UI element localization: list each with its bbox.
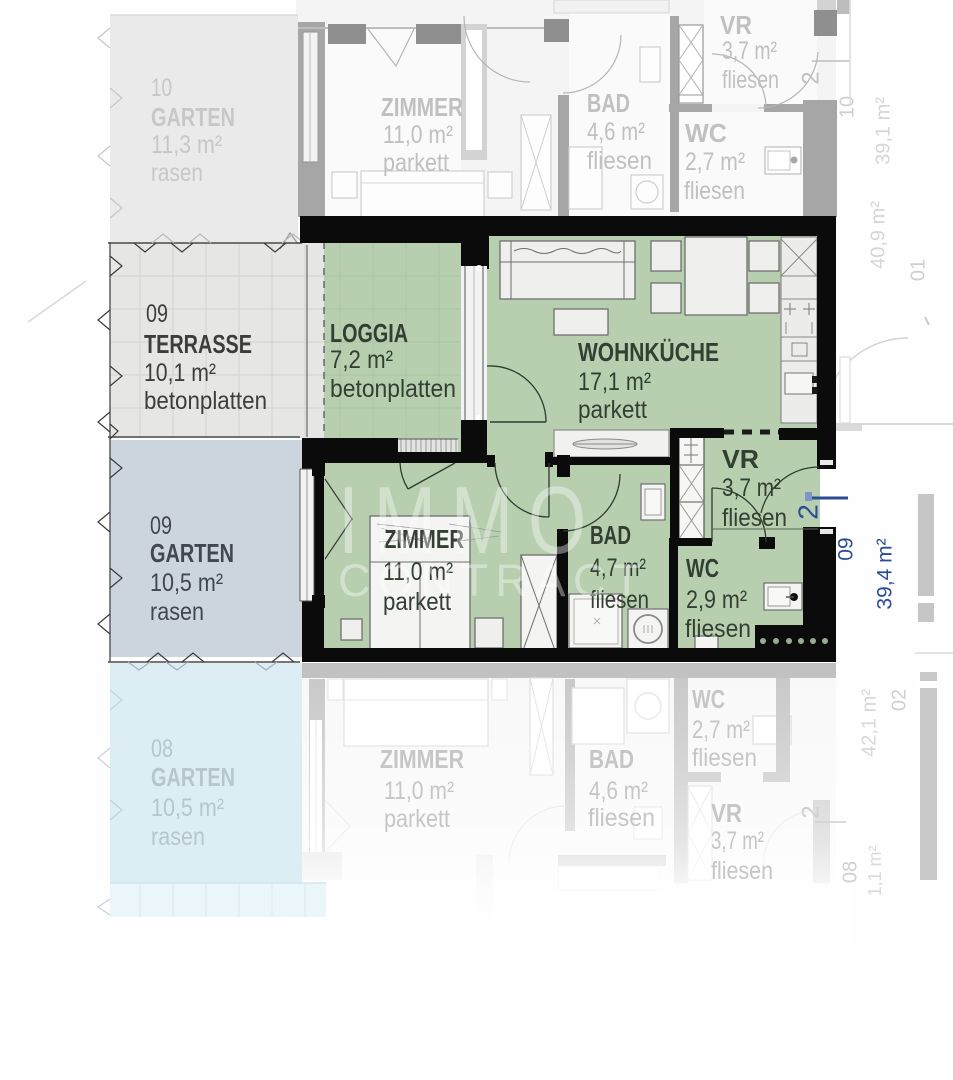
svg-text:LOGGIA: LOGGIA	[330, 318, 408, 348]
svg-text:ZIMMER: ZIMMER	[380, 744, 464, 774]
svg-text:parkett: parkett	[383, 149, 449, 177]
svg-text:rasen: rasen	[150, 598, 204, 626]
svg-text:02: 02	[888, 689, 910, 711]
svg-text:39,1 m²: 39,1 m²	[872, 97, 894, 165]
svg-text:09: 09	[835, 537, 858, 560]
svg-text:09: 09	[150, 512, 172, 540]
svg-text:2: 2	[797, 71, 824, 84]
svg-text:BAD: BAD	[589, 744, 634, 774]
svg-text:ZIMMER: ZIMMER	[381, 92, 463, 122]
svg-text:40,9 m²: 40,9 m²	[867, 201, 889, 269]
svg-text:1,1 m²: 1,1 m²	[865, 845, 885, 896]
svg-text:parkett: parkett	[384, 805, 450, 833]
svg-text:VR: VR	[711, 798, 742, 828]
svg-text:09: 09	[146, 300, 168, 328]
svg-text:01: 01	[907, 259, 929, 281]
svg-text:parkett: parkett	[578, 396, 647, 424]
svg-text:CONTRACT: CONTRACT	[338, 555, 648, 606]
svg-text:rasen: rasen	[151, 823, 205, 851]
svg-text:WOHNKÜCHE: WOHNKÜCHE	[578, 337, 719, 367]
svg-text:GARTEN: GARTEN	[151, 762, 235, 792]
svg-text:fliesen: fliesen	[722, 66, 779, 94]
svg-text:fliesen: fliesen	[711, 857, 773, 885]
svg-text:2,7 m²: 2,7 m²	[692, 716, 750, 744]
svg-text:11,3 m²: 11,3 m²	[151, 131, 222, 159]
svg-text:betonplatten: betonplatten	[330, 375, 456, 403]
svg-text:3,7 m²: 3,7 m²	[722, 474, 781, 502]
svg-text:GARTEN: GARTEN	[151, 102, 235, 132]
svg-text:WC: WC	[692, 684, 725, 714]
svg-text:10,5 m²: 10,5 m²	[151, 794, 224, 822]
svg-text:17,1 m²: 17,1 m²	[578, 368, 651, 396]
svg-text:BAD: BAD	[587, 88, 630, 118]
svg-text:betonplatten: betonplatten	[144, 387, 267, 415]
svg-text:08: 08	[151, 735, 173, 763]
svg-text:fliesen: fliesen	[588, 804, 655, 832]
svg-text:08: 08	[839, 861, 861, 883]
svg-text:2: 2	[797, 805, 824, 818]
svg-text:10,5 m²: 10,5 m²	[150, 569, 223, 597]
svg-text:2,7 m²: 2,7 m²	[685, 148, 745, 176]
svg-text:39,4 m²: 39,4 m²	[874, 538, 897, 609]
svg-text:GARTEN: GARTEN	[150, 538, 234, 568]
svg-text:2: 2	[792, 504, 823, 520]
svg-text:fliesen: fliesen	[685, 615, 751, 643]
svg-text:3,7 m²: 3,7 m²	[711, 827, 764, 855]
svg-text:rasen: rasen	[151, 159, 203, 187]
svg-text:TERRASSE: TERRASSE	[144, 329, 252, 359]
svg-text:VR: VR	[720, 10, 752, 40]
svg-text:WC: WC	[685, 118, 727, 148]
svg-text:42,1 m²: 42,1 m²	[858, 689, 880, 757]
svg-text:fliesen: fliesen	[684, 177, 745, 205]
svg-text:2,9 m²: 2,9 m²	[686, 586, 747, 614]
svg-text:4,6 m²: 4,6 m²	[589, 777, 648, 805]
svg-text:4,6 m²: 4,6 m²	[587, 118, 645, 146]
svg-text:11,0 m²: 11,0 m²	[384, 777, 454, 805]
svg-text:fliesen: fliesen	[587, 147, 652, 175]
svg-text:7,2 m²: 7,2 m²	[330, 346, 393, 374]
svg-text:10,1 m²: 10,1 m²	[144, 359, 216, 387]
svg-text:VR: VR	[722, 444, 759, 474]
svg-text:10: 10	[836, 96, 858, 118]
svg-text:10: 10	[151, 74, 172, 102]
svg-text:11,0 m²: 11,0 m²	[383, 121, 453, 149]
svg-text:fliesen: fliesen	[692, 744, 757, 772]
svg-text:3,7 m²: 3,7 m²	[722, 37, 777, 65]
svg-text:WC: WC	[686, 553, 719, 583]
